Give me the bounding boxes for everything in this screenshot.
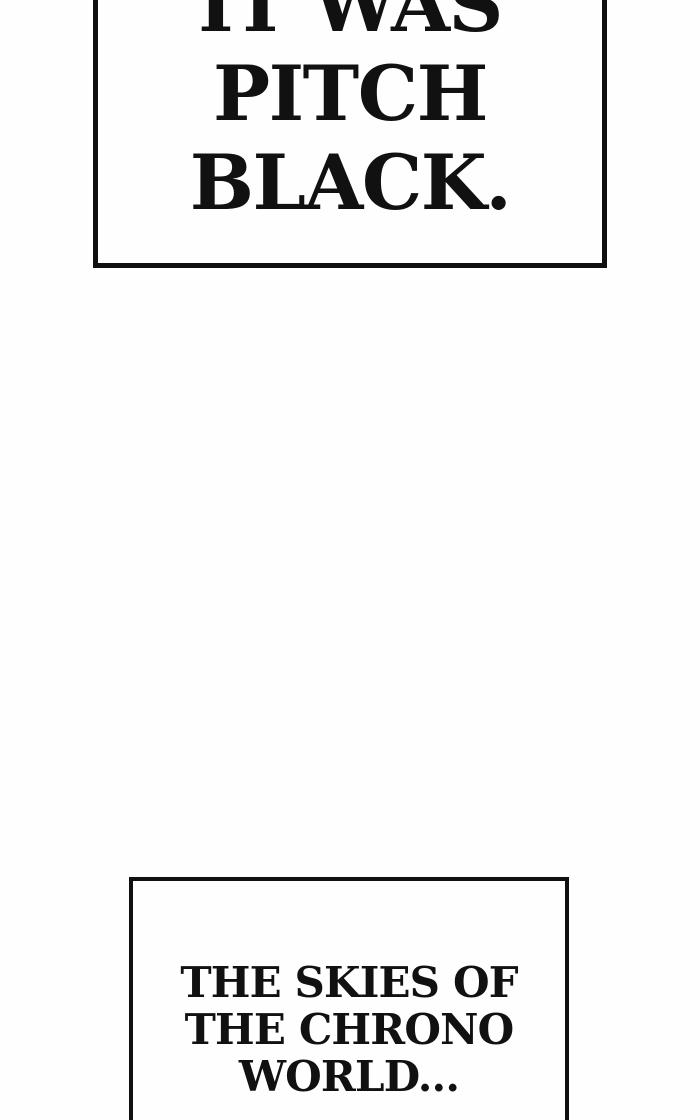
narration-line: PITCH	[190, 49, 511, 138]
narration-line: IT WAS	[190, 0, 511, 49]
narration-line: THE CHRONO	[180, 1006, 517, 1053]
narration-text-top: IT WAS PITCH BLACK.	[190, 0, 511, 227]
narration-text-bottom: THE SKIES OF THE CHRONO WORLD...	[180, 959, 517, 1100]
narration-line: THE SKIES OF	[180, 959, 517, 1006]
narration-line: BLACK.	[190, 138, 511, 227]
narration-box-top: IT WAS PITCH BLACK.	[93, 0, 607, 268]
narration-line: WORLD...	[180, 1053, 517, 1100]
narration-box-bottom: THE SKIES OF THE CHRONO WORLD...	[129, 877, 569, 1120]
webtoon-page: IT WAS PITCH BLACK. THE SKIES OF THE CHR…	[0, 0, 700, 1120]
